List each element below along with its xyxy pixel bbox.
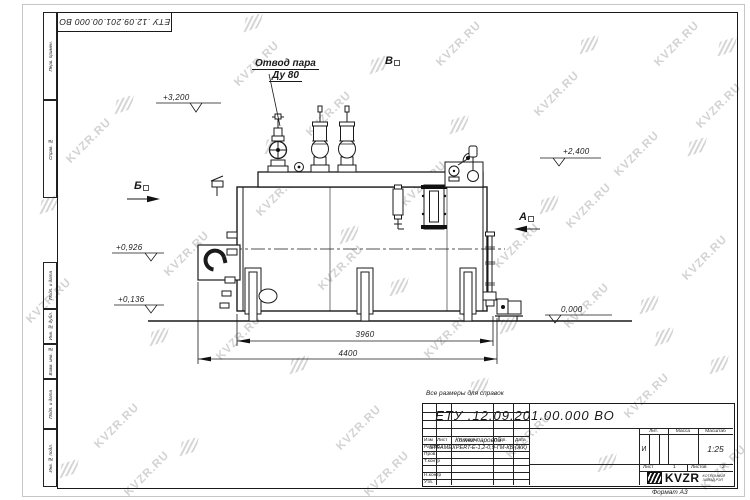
col-ndoc: N докум. — [459, 438, 478, 443]
elevation-0926: +0,926 — [116, 243, 143, 252]
col-list: Лист — [437, 438, 447, 443]
front-plate-nozzles — [211, 176, 237, 308]
kvzr-emblem-icon — [647, 472, 662, 484]
sheets-value: 2 — [722, 465, 725, 470]
reference-note: Все размеры для справок — [426, 390, 504, 397]
view-label-v: В — [385, 55, 400, 67]
row-nkontr: Н.контр — [424, 473, 441, 478]
callout-line1: Отвод пара — [252, 58, 319, 70]
row-prov: Пров. — [424, 452, 437, 457]
row-tkontr: Т.контр — [424, 459, 440, 464]
dimension-4400: 4400 — [326, 349, 370, 358]
title-block: Изм Лист N докум. Подп. Дата Разраб. Про… — [422, 403, 735, 487]
dimension-3960: 3960 — [343, 330, 387, 339]
drawing-sheet: KVZR.RUKVZR.RUKVZR.RUKVZR.RUKVZR.RUKVZR.… — [0, 0, 750, 500]
lit-value: И — [639, 434, 649, 464]
elevation-0000: 0,000 — [561, 305, 583, 314]
kvzr-logo-text: KVZR — [665, 471, 700, 485]
steam-valve — [268, 114, 288, 172]
view-label-b: Б — [134, 180, 149, 192]
company-logo-row: KVZR КОТЕЛЬНЫЙ ЗАВОД РЭП — [639, 471, 733, 485]
view-b-subscript — [143, 185, 149, 191]
format-note: Формат А3 — [652, 489, 688, 496]
col-data: Дата — [515, 438, 526, 443]
mass-label: Масса — [668, 428, 698, 434]
view-v-subscript — [394, 60, 400, 66]
view-arrows — [127, 196, 540, 232]
elevation-3200: +3,200 — [163, 93, 190, 102]
view-a-subscript — [528, 216, 534, 222]
feed-unit — [445, 146, 483, 187]
view-label-a: А — [519, 211, 534, 223]
company-name: КОТЕЛЬНЫЙ ЗАВОД РЭП — [703, 474, 726, 482]
sheet-value: 1 — [673, 465, 676, 470]
steam-outlet-callout: Отвод пара Ду 80 — [252, 58, 319, 82]
manhole — [259, 289, 277, 303]
water-level-indicator — [421, 185, 447, 229]
vent-fitting — [295, 163, 304, 172]
col-podp: Подп. — [494, 438, 507, 443]
support-legs — [245, 268, 476, 321]
elevation-0136: +0,136 — [118, 295, 145, 304]
sheets-label: Листов — [691, 465, 707, 470]
elevation-2400: +2,400 — [563, 147, 590, 156]
blowdown-line — [483, 232, 523, 321]
callout-line2: Ду 80 — [269, 70, 302, 82]
title-doc-number: ЕТУ .12.09.201.00.000 ВО — [423, 404, 627, 426]
sheet-label: Лист — [643, 465, 653, 470]
row-razrab: Разраб. — [424, 445, 441, 450]
scale-value: 1:25 — [698, 434, 733, 464]
row-utv: Утв. — [424, 480, 433, 485]
col-izm: Изм — [424, 438, 433, 443]
gauge-glass — [393, 185, 404, 229]
safety-valves — [311, 106, 356, 172]
